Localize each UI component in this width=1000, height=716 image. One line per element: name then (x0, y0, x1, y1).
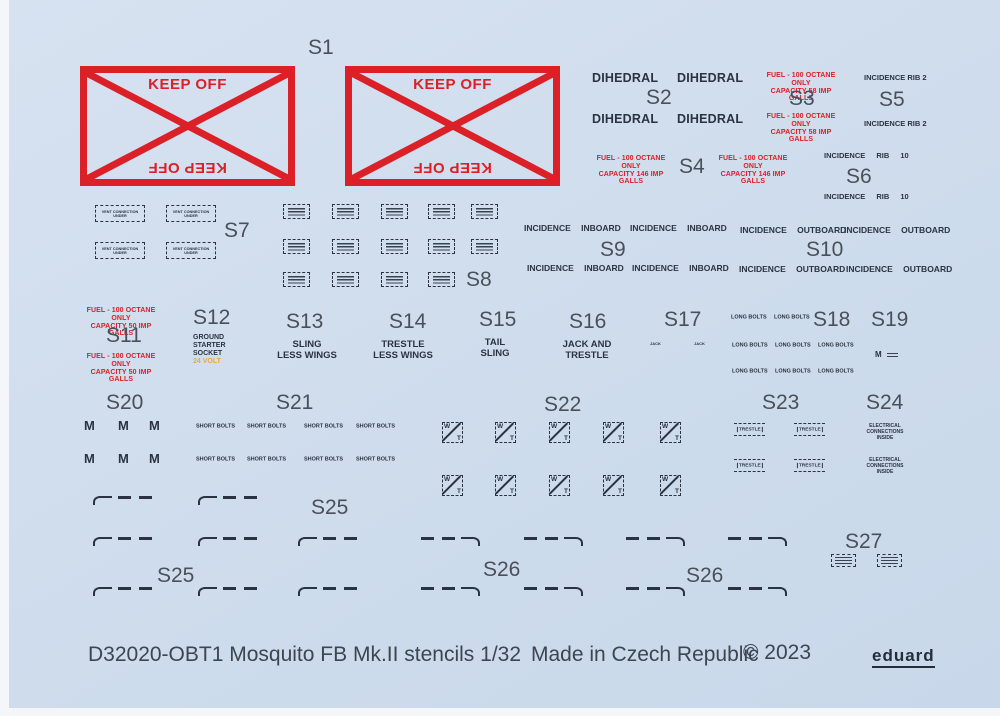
stencil-box (332, 239, 359, 254)
wt-box: WT (495, 422, 516, 443)
stencil-box (471, 204, 498, 219)
keep-off-decal: KEEP OFF KEEP OFF (80, 66, 295, 186)
electrical-connections-stencil: ELECTRICALCONNECTIONSINSIDE (855, 423, 915, 441)
long-bolts-stencil: LONG BOLTS (732, 342, 768, 348)
short-bolts-stencil: SHORT BOLTS (304, 423, 343, 429)
stencil-box (428, 239, 455, 254)
group-label-s11: S11 (106, 324, 142, 348)
group-label-s3: S3 (789, 87, 815, 111)
incidence-outboard-stencil: INCIDENCE OUTBOARD (846, 264, 952, 274)
fine-print-box (877, 554, 902, 567)
group-label-s10: S10 (806, 238, 843, 262)
long-bolts-stencil: LONG BOLTS (818, 342, 854, 348)
wt-box: WT (549, 475, 570, 496)
m-stencil: M (118, 418, 129, 433)
group-label-s9: S9 (600, 238, 626, 262)
short-bolts-stencil: SHORT BOLTS (247, 456, 286, 462)
long-bolts-stencil: LONG BOLTS (774, 314, 810, 320)
group-label-s25: S25 (311, 496, 348, 520)
trestle-box: TRESTLE (734, 423, 765, 436)
dihedral-stencil: DIHEDRAL (677, 112, 743, 126)
group-label-s18: S18 (813, 308, 850, 332)
stencil-box (283, 204, 310, 219)
vent-connection-box: VENT CONNECTION UNDER (95, 242, 145, 259)
vent-connection-box: VENT CONNECTION UNDER (95, 205, 145, 222)
group-label-s26: S26 (483, 558, 520, 582)
walkway-dash-decal (414, 537, 480, 546)
sling-less-wings-stencil: SLINGLESS WINGS (265, 339, 349, 361)
group-label-s24: S24 (866, 391, 903, 415)
walkway-dash-decal (619, 537, 685, 546)
stencil-box (332, 204, 359, 219)
volt-stencil: 24 VOLT (193, 358, 226, 366)
trestle-box: TRESTLE (794, 423, 825, 436)
walkway-dash-decal (93, 537, 159, 546)
short-bolts-stencil: SHORT BOLTS (356, 423, 395, 429)
group-label-s1: S1 (308, 36, 334, 60)
walkway-dash-decal (198, 537, 264, 546)
long-bolts-stencil: LONG BOLTS (775, 342, 811, 348)
wt-box: WT (603, 422, 624, 443)
walkway-dash-decal (414, 587, 480, 596)
trestle-box: TRESTLE (794, 459, 825, 472)
long-bolts-stencil: LONG BOLTS (731, 314, 767, 320)
made-in-text: Made in Czech Republic (531, 643, 759, 667)
wt-box: WT (660, 422, 681, 443)
keep-off-text: KEEP OFF (352, 76, 553, 93)
group-label-s17: S17 (664, 308, 701, 332)
dihedral-stencil: DIHEDRAL (677, 71, 743, 85)
fine-print-stencil (887, 353, 898, 358)
walkway-dash-decal (721, 537, 787, 546)
incidence-inboard-stencil: INCIDENCE INBOARD (524, 223, 621, 233)
group-label-s6: S6 (846, 165, 872, 189)
keep-off-text: KEEP OFF (87, 76, 288, 93)
incidence-rib10-stencil: INCIDENCE RIB 10 (824, 151, 909, 160)
walkway-dash-decal (93, 587, 159, 596)
jack-stencil: JACK (650, 342, 661, 346)
short-bolts-stencil: SHORT BOLTS (196, 423, 235, 429)
tail-sling-stencil: TAILSLING (453, 337, 537, 359)
group-label-s23: S23 (762, 391, 799, 415)
walkway-dash-decal (93, 496, 159, 505)
wt-box: WT (660, 475, 681, 496)
electrical-connections-stencil: ELECTRICALCONNECTIONSINSIDE (855, 457, 915, 475)
group-label-s5: S5 (879, 88, 905, 112)
stencil-box (381, 272, 408, 287)
group-label-s12: S12 (193, 306, 230, 330)
stencil-box (471, 239, 498, 254)
incidence-rib2-stencil: INCIDENCE RIB 2 (864, 73, 927, 82)
wt-box: WT (549, 422, 570, 443)
short-bolts-stencil: SHORT BOLTS (304, 456, 343, 462)
short-bolts-stencil: SHORT BOLTS (247, 423, 286, 429)
stencil-box (332, 272, 359, 287)
dihedral-stencil: DIHEDRAL (592, 112, 658, 126)
long-bolts-stencil: LONG BOLTS (732, 368, 768, 374)
vent-connection-box: VENT CONNECTION UNDER (166, 205, 216, 222)
stencil-box (283, 272, 310, 287)
trestle-box: TRESTLE (734, 459, 765, 472)
group-label-s14: S14 (389, 310, 426, 334)
dihedral-stencil: DIHEDRAL (592, 71, 658, 85)
m-stencil: M (149, 451, 160, 466)
fine-print-box (831, 554, 856, 567)
m-stencil: M (84, 451, 95, 466)
fuel-stencil: FUEL - 100 OCTANE ONLYCAPACITY 58 IMP GA… (758, 113, 844, 144)
decal-sheet-scan: S1 KEEP OFF KEEP OFF KEEP OFF KEEP OFF D… (0, 0, 1000, 716)
walkway-dash-decal (517, 587, 583, 596)
long-bolts-stencil: LONG BOLTS (818, 368, 854, 374)
walkway-dash-decal (198, 587, 264, 596)
group-label-s21: S21 (276, 391, 313, 415)
walkway-dash-decal (619, 587, 685, 596)
stencil-box (283, 239, 310, 254)
fuel-stencil: FUEL - 100 OCTANE ONLYCAPACITY 50 IMP GA… (78, 353, 164, 384)
stencil-box (381, 239, 408, 254)
incidence-inboard-stencil: INCIDENCE INBOARD (632, 263, 729, 273)
walkway-dash-decal (517, 537, 583, 546)
group-label-s7: S7 (224, 219, 250, 243)
wt-box: WT (495, 475, 516, 496)
incidence-outboard-stencil: INCIDENCE OUTBOARD (844, 225, 950, 235)
short-bolts-stencil: SHORT BOLTS (196, 456, 235, 462)
short-bolts-stencil: SHORT BOLTS (356, 456, 395, 462)
walkway-dash-decal (298, 537, 364, 546)
copyright-text: © 2023 (743, 641, 811, 665)
incidence-outboard-stencil: INCIDENCE OUTBOARD (740, 225, 846, 235)
stencil-box (381, 204, 408, 219)
group-label-s22: S22 (544, 393, 581, 417)
stencil-box (428, 272, 455, 287)
long-bolts-stencil: LONG BOLTS (775, 368, 811, 374)
wt-box: WT (442, 475, 463, 496)
fuel-stencil: FUEL - 100 OCTANE ONLYCAPACITY 146 IMP G… (588, 155, 674, 186)
group-label-s26: S26 (686, 564, 723, 588)
m-stencil: M (84, 418, 95, 433)
keep-off-text-inverted: KEEP OFF (352, 159, 553, 176)
jack-stencil: JACK (694, 342, 705, 346)
incidence-inboard-stencil: INCIDENCE INBOARD (527, 263, 624, 273)
walkway-dash-decal (198, 496, 264, 505)
vent-connection-box: VENT CONNECTION UNDER (166, 242, 216, 259)
fuel-stencil: FUEL - 100 OCTANE ONLYCAPACITY 146 IMP G… (710, 155, 796, 186)
keep-off-decal: KEEP OFF KEEP OFF (345, 66, 560, 186)
m-stencil: M (149, 418, 160, 433)
stencil-box (428, 204, 455, 219)
group-label-s27: S27 (845, 530, 882, 554)
group-label-s2: S2 (646, 86, 672, 110)
wt-box: WT (442, 422, 463, 443)
eduard-logo: eduard (872, 646, 935, 668)
group-label-s20: S20 (106, 391, 143, 415)
group-label-s16: S16 (569, 310, 606, 334)
m-stencil: M (875, 350, 882, 359)
trestle-less-wings-stencil: TRESTLELESS WINGS (361, 339, 445, 361)
ground-starter-socket-stencil: GROUND STARTER SOCKET 24 VOLT (193, 334, 226, 366)
group-label-s15: S15 (479, 308, 516, 332)
incidence-rib10-stencil: INCIDENCE RIB 10 (824, 192, 909, 201)
m-stencil: M (118, 451, 129, 466)
group-label-s19: S19 (871, 308, 908, 332)
walkway-dash-decal (298, 587, 364, 596)
incidence-rib2-stencil: INCIDENCE RIB 2 (864, 119, 927, 128)
group-label-s25: S25 (157, 564, 194, 588)
group-label-s8: S8 (466, 268, 492, 292)
wt-box: WT (603, 475, 624, 496)
keep-off-text-inverted: KEEP OFF (87, 159, 288, 176)
jack-and-trestle-stencil: JACK ANDTRESTLE (545, 339, 629, 361)
product-title: D32020-OBT1 Mosquito FB Mk.II stencils 1… (88, 643, 521, 667)
walkway-dash-decal (721, 587, 787, 596)
incidence-inboard-stencil: INCIDENCE INBOARD (630, 223, 727, 233)
incidence-outboard-stencil: INCIDENCE OUTBOARD (739, 264, 845, 274)
group-label-s13: S13 (286, 310, 323, 334)
group-label-s4: S4 (679, 155, 705, 179)
